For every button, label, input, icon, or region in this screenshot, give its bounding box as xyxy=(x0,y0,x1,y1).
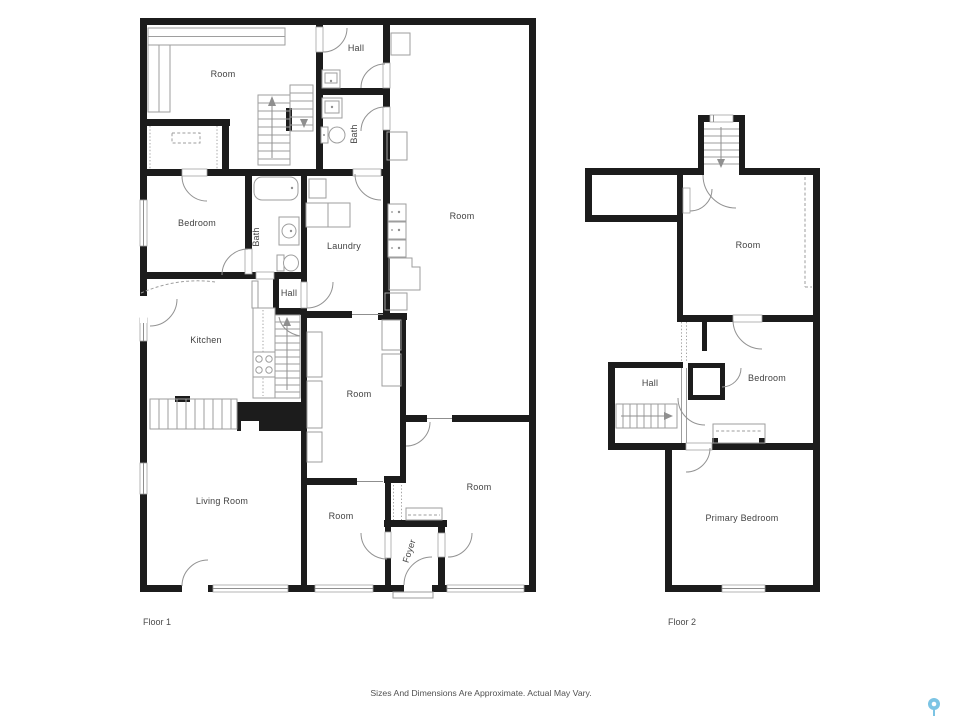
label-living-room: Living Room xyxy=(196,496,248,506)
floor2-labels: Room Hall Bedroom Primary Bedroom xyxy=(642,240,786,523)
bath-mid-sink xyxy=(279,217,299,245)
floor1-plan: Room Hall Bath Room Bedroom Bath Laundry… xyxy=(140,18,536,627)
label-laundry: Laundry xyxy=(327,241,361,251)
label-room-bottom-right: Room xyxy=(467,482,492,492)
washer-dryer xyxy=(306,203,350,227)
label-room-mid: Room xyxy=(347,389,372,399)
label-bath-mid: Bath xyxy=(251,227,261,246)
hall-sink xyxy=(322,70,340,88)
floor1-stairs-upper xyxy=(258,85,313,165)
label-f2-bedroom: Bedroom xyxy=(748,373,786,383)
label-room-top-left: Room xyxy=(211,69,236,79)
disclaimer-text: Sizes And Dimensions Are Approximate. Ac… xyxy=(370,688,591,698)
floor2-stairs-hall xyxy=(616,404,677,428)
floorplan-page: Room Hall Bath Room Bedroom Bath Laundry… xyxy=(0,0,960,720)
stove xyxy=(253,352,275,377)
floor2-walls xyxy=(585,115,820,592)
label-f2-primary-bedroom: Primary Bedroom xyxy=(705,513,778,523)
entry-step xyxy=(393,592,433,598)
bath-mid-tub xyxy=(254,177,298,200)
label-foyer: Foyer xyxy=(401,538,418,564)
label-kitchen: Kitchen xyxy=(190,335,221,345)
map-pin-icon xyxy=(928,698,940,716)
vanity-units xyxy=(388,204,406,257)
floor1-title: Floor 1 xyxy=(143,617,171,627)
floor2-stairs-shaft xyxy=(704,127,739,168)
floor2-fixtures xyxy=(713,177,812,443)
label-f2-hall: Hall xyxy=(642,378,658,388)
floor2-doors xyxy=(678,175,762,472)
label-bath-top: Bath xyxy=(349,124,359,143)
bath-top-sink xyxy=(322,98,342,118)
shelf-closet xyxy=(713,424,765,443)
label-bedroom: Bedroom xyxy=(178,218,216,228)
kitchen-counter xyxy=(252,281,275,398)
label-hall-top: Hall xyxy=(348,43,364,53)
floorplan-canvas: Room Hall Bath Room Bedroom Bath Laundry… xyxy=(0,0,960,720)
floor2-plan: Room Hall Bedroom Primary Bedroom Floor … xyxy=(585,115,820,627)
bath-top-toilet xyxy=(321,127,345,143)
label-f2-room: Room xyxy=(736,240,761,250)
floor1-stairs-mid xyxy=(275,315,300,398)
floor2-title: Floor 2 xyxy=(668,617,696,627)
label-hall-mid: Hall xyxy=(281,288,297,298)
label-room-right: Room xyxy=(450,211,475,221)
laundry-closet xyxy=(309,179,326,198)
floor1-stairs-basement xyxy=(150,399,237,429)
bath-mid-toilet xyxy=(277,255,299,271)
label-room-bottom-mid: Room xyxy=(329,511,354,521)
